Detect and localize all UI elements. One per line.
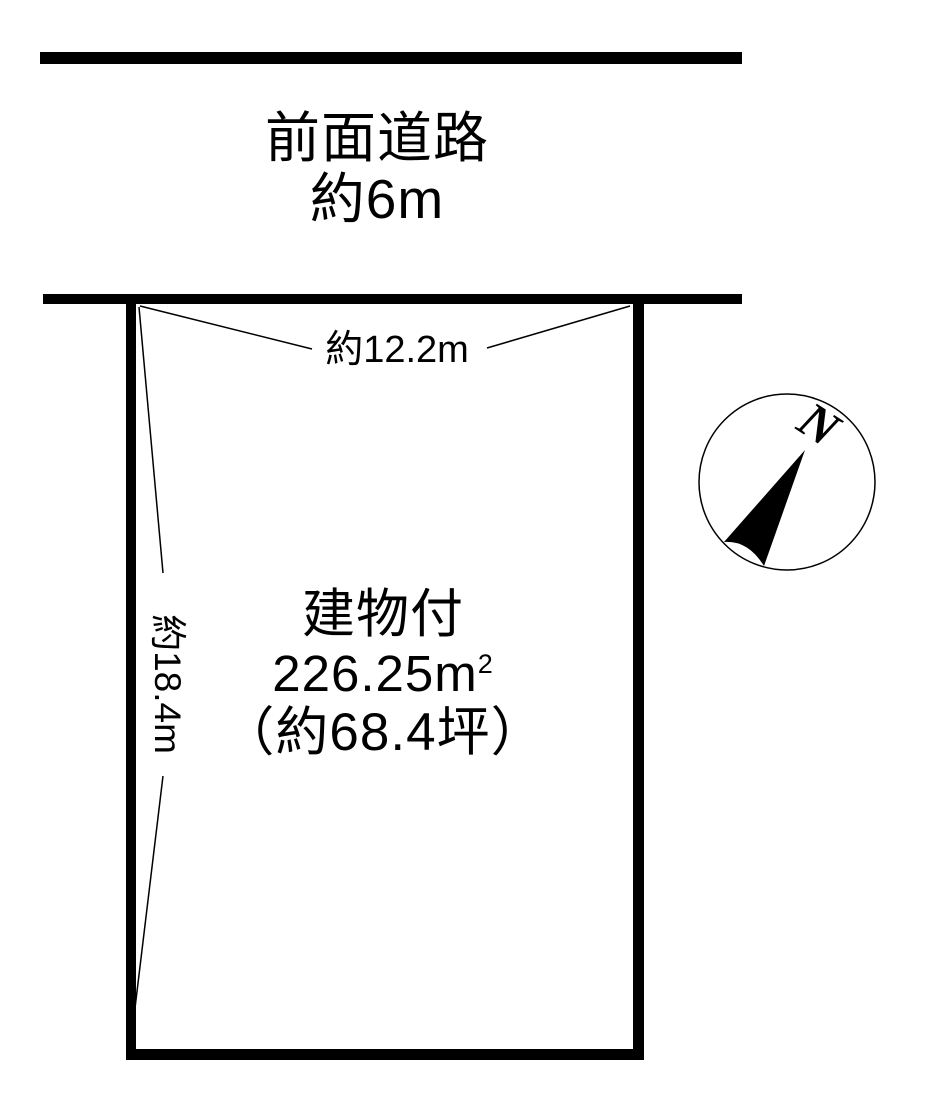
frontage-leader-right [487,306,630,348]
road-edge-top [40,52,742,64]
road-name-text: 前面道路 [177,108,577,169]
plot-area-tsubo-text: （約68.4坪） [213,703,553,762]
depth-leader-bottom [135,776,163,1008]
frontage-dimension-label: 約12.2m [297,329,497,371]
plot-area-sqm-value: 226.25m [272,645,477,702]
compass: N [699,390,875,570]
plot-usage-text: 建物付 [213,585,553,644]
land-plot-diagram: N 前面道路 約6m 約12.2m 約18.4m 建物付 226.25m2 （約… [0,0,949,1106]
plot-info-label: 建物付 226.25m2 （約68.4坪） [213,585,553,762]
plot-area-sqm-sup: 2 [478,649,494,679]
plot-boundary-bottom [126,1049,644,1060]
road-label: 前面道路 約6m [177,108,577,230]
plot-boundary-right [633,304,644,1060]
depth-leader-top [139,307,163,573]
road-width-text: 約6m [177,169,577,230]
road-edge-bottom [43,294,742,304]
plot-area-sqm-text: 226.25m2 [213,644,553,703]
plot-boundary-left [126,304,136,1060]
depth-dimension-label: 約18.4m [147,609,187,759]
frontage-leader-left [140,306,312,349]
